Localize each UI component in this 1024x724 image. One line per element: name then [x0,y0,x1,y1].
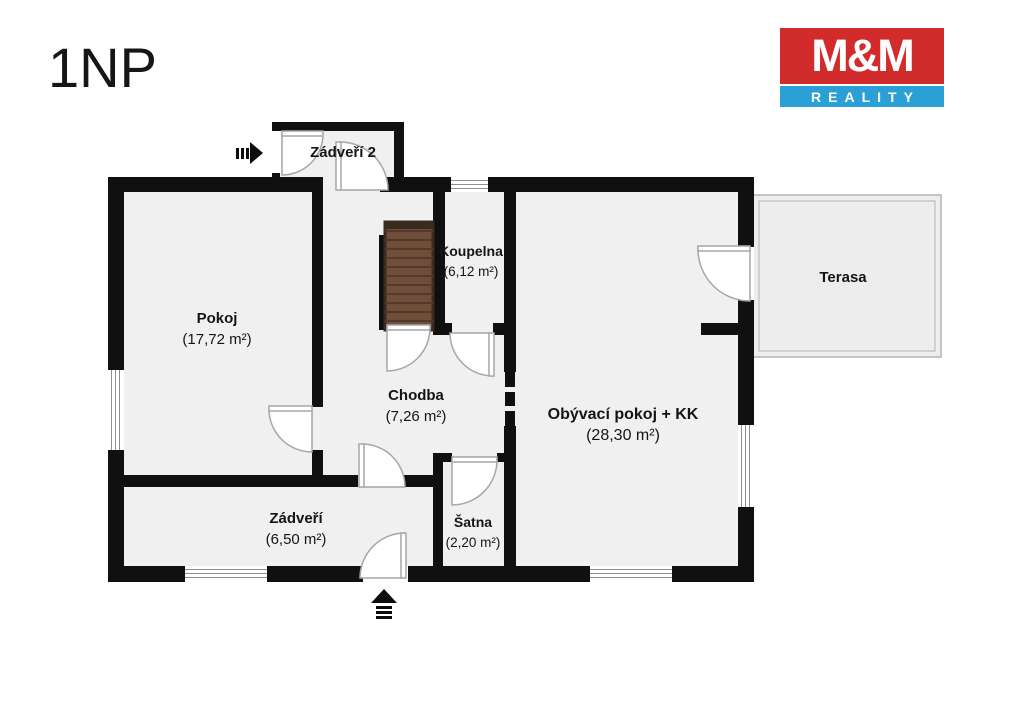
room-label-terasa: Terasa [819,268,866,288]
passage-dashed-opening [505,372,515,426]
door-leaf [359,444,364,487]
door-leaf [282,131,323,136]
room-area: (6,12 m²) [439,262,503,282]
door-leaf [698,246,750,251]
room-name: Šatna [446,512,501,532]
room-label-koupelna: Koupelna (6,12 m²) [439,241,503,282]
room-area: (2,20 m²) [446,533,501,553]
main-entrance-arrow-icon [371,589,397,619]
room-area: (6,50 m²) [266,530,327,550]
door-leaf [269,406,312,411]
room-name: Koupelna [439,241,503,261]
room-label-pokoj: Pokoj (17,72 m²) [182,309,251,350]
room-name: Chodba [386,386,447,406]
room-label-chodba: Chodba (7,26 m²) [386,386,447,427]
room-label-zadveri: Zádveří (6,50 m²) [266,509,327,550]
floorplan-page: 1NP M&M REALITY [0,0,1024,724]
door-leaf [489,333,494,376]
room-label-zadveri2: Zádveří 2 [310,143,376,163]
room-name: Zádveří [266,509,327,529]
room-name: Terasa [819,268,866,288]
staircase-icon [385,222,433,330]
floors-layer [116,126,747,574]
room-name: Zádveří 2 [310,143,376,163]
floor-plan-svg [0,0,1024,724]
door-leaf [452,457,497,462]
room-label-obyvaci-pokoj: Obývací pokoj + KK (28,30 m²) [548,405,699,446]
room-label-satna: Šatna (2,20 m²) [446,512,501,553]
side-entrance-arrow-icon [236,142,263,164]
room-area: (28,30 m²) [548,426,699,446]
door-leaf [387,325,430,330]
room-name: Obývací pokoj + KK [548,405,699,425]
door-leaf [401,533,406,578]
room-name: Pokoj [182,309,251,329]
floor-plan: Zádveří 2 Pokoj (17,72 m²) Koupelna (6,1… [0,0,1024,724]
room-area: (7,26 m²) [386,407,447,427]
room-area: (17,72 m²) [182,330,251,350]
